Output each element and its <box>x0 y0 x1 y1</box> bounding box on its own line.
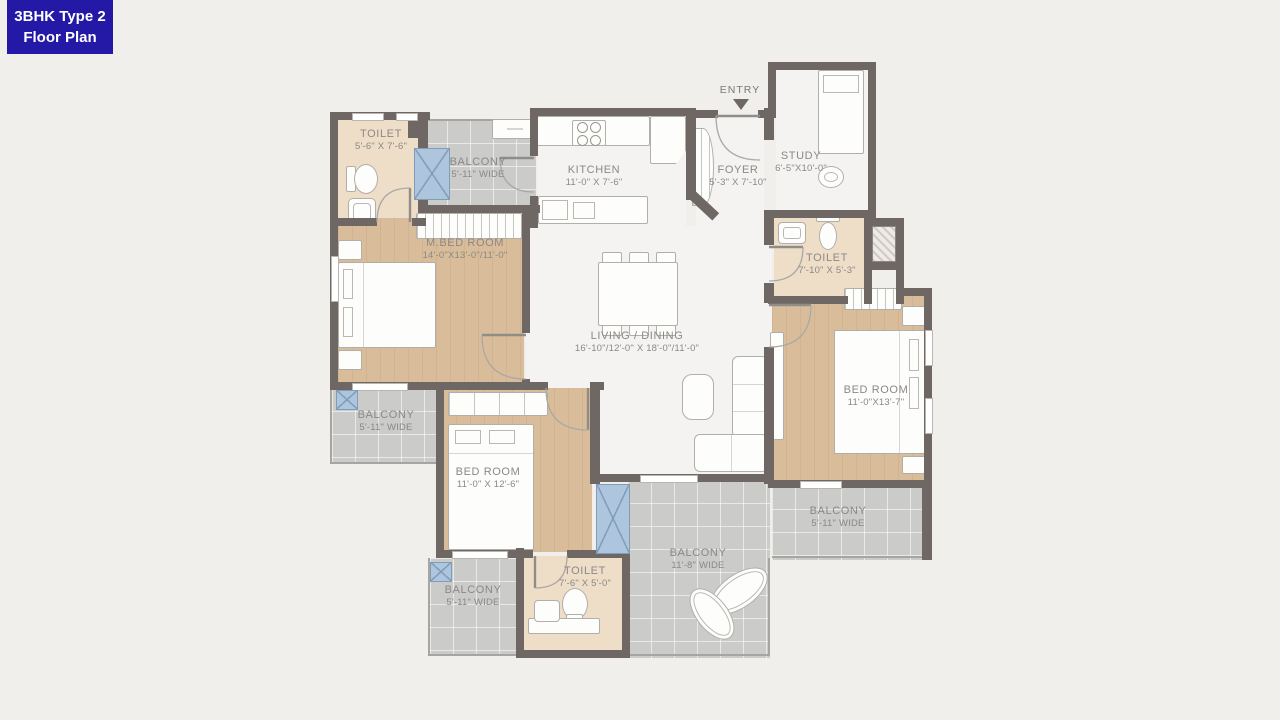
railing <box>628 654 770 656</box>
room-label-balcony-left: BALCONY 5'-11" WIDE <box>336 408 436 435</box>
window <box>452 551 508 559</box>
sink-icon <box>542 200 568 220</box>
room-label-toilet-top-left: TOILET 5'-6" X 7'-6" <box>331 127 431 154</box>
wall-segment <box>522 379 530 390</box>
wall-segment <box>764 347 774 484</box>
room-label-study: STUDY 6'-5"X10'-0" <box>751 149 851 176</box>
badge-line2: Floor Plan <box>7 27 113 48</box>
wall-segment <box>922 486 932 560</box>
railing <box>772 556 922 558</box>
wall-segment <box>522 210 530 333</box>
sofa-vertical <box>732 356 768 438</box>
window <box>352 383 408 391</box>
drainboard <box>573 202 595 219</box>
pillow <box>909 339 919 371</box>
cushion-line <box>733 384 767 385</box>
room-label-living-dining: LIVING / DINING 16'-10"/12'-0" X 18'-0"/… <box>532 329 742 356</box>
wardrobe <box>844 288 902 310</box>
room-label-bedroom-right: BED ROOM 11'-0"X13'-7" <box>816 383 936 410</box>
window <box>640 475 698 483</box>
stove-icon <box>572 120 606 146</box>
railing <box>330 462 438 464</box>
wall-segment <box>768 296 848 304</box>
nightstand <box>338 350 362 370</box>
badge-line1: 3BHK Type 2 <box>7 6 113 27</box>
wall-segment <box>768 480 932 488</box>
study-daybed <box>818 70 864 154</box>
wall-segment <box>590 382 600 484</box>
entry-arrow-icon <box>733 99 749 110</box>
basin <box>783 227 801 239</box>
wall-segment <box>530 108 692 116</box>
wall-segment <box>530 108 538 156</box>
room-label-kitchen: KITCHEN 11'-0" X 7'-6" <box>544 163 644 190</box>
room-label-balcony-bottom-center: BALCONY 11'-8" WIDE <box>648 546 748 573</box>
washing-machine-mark <box>507 128 523 130</box>
entry-label: ENTRY <box>712 84 768 96</box>
wall-segment <box>764 283 774 303</box>
pillow <box>343 269 353 299</box>
wall-segment <box>764 210 774 245</box>
washbasin <box>534 600 560 622</box>
burner-icon <box>590 122 601 133</box>
window <box>331 256 339 302</box>
room-label-master-bedroom: M.BED ROOM 14'-0"X13'-0"/11'-0" <box>390 236 540 263</box>
kitchen-sink-counter <box>538 196 648 224</box>
burner-icon <box>590 135 601 146</box>
cushion-line <box>731 435 732 471</box>
wall-segment <box>768 62 876 70</box>
title-badge: 3BHK Type 2 Floor Plan <box>7 0 113 54</box>
railing <box>768 558 770 656</box>
floor-plan-canvas: 3BHK Type 2 Floor Plan <box>0 0 1280 720</box>
wall-segment <box>518 650 630 658</box>
nightstand <box>338 240 362 260</box>
bed-master <box>338 262 436 348</box>
cushion-line <box>733 411 767 412</box>
toilet-bowl-icon <box>354 164 378 194</box>
window <box>800 481 842 489</box>
wall-segment <box>330 112 338 390</box>
washbasin <box>778 222 806 244</box>
blanket-line <box>363 263 364 347</box>
glass-window <box>596 484 630 554</box>
pillow <box>823 75 859 93</box>
room-label-toilet-right: TOILET 7'-10" X 5'-3" <box>777 251 877 278</box>
room-label-balcony-top: BALCONY 5'-11" WIDE <box>428 155 528 182</box>
burner-icon <box>577 122 588 133</box>
burner-icon <box>577 135 588 146</box>
glass-window <box>336 390 358 410</box>
wall-segment <box>896 218 904 304</box>
room-label-balcony-bottom-right: BALCONY 5'-11" WIDE <box>788 504 888 531</box>
toilet-bowl-icon <box>819 222 837 250</box>
glass-window <box>430 562 452 582</box>
room-label-toilet-bottom: TOILET 7'-6" X 5'-0" <box>535 564 635 591</box>
room-label-balcony-bottom-left: BALCONY 5'-11" WIDE <box>423 583 523 610</box>
room-label-bedroom-bottom: BED ROOM 11'-0" X 12'-6" <box>428 465 548 492</box>
nightstand <box>902 306 926 326</box>
wall-segment <box>530 196 538 228</box>
railing <box>330 390 332 464</box>
railing <box>428 654 520 656</box>
nightstand <box>902 456 926 474</box>
sofa-horizontal <box>694 434 768 472</box>
window <box>396 113 418 121</box>
refrigerator <box>650 116 686 164</box>
window <box>352 113 384 121</box>
coffee-table <box>682 374 714 420</box>
wall-segment <box>768 70 776 116</box>
window <box>925 330 933 366</box>
wall-segment <box>768 210 876 218</box>
pillow <box>343 307 353 337</box>
pillow <box>489 430 515 444</box>
dining-table <box>598 262 678 326</box>
wall-segment <box>412 218 426 226</box>
pillow <box>455 430 481 444</box>
wall-segment <box>868 62 876 218</box>
wardrobe <box>448 392 548 416</box>
blanket-line <box>449 453 533 454</box>
